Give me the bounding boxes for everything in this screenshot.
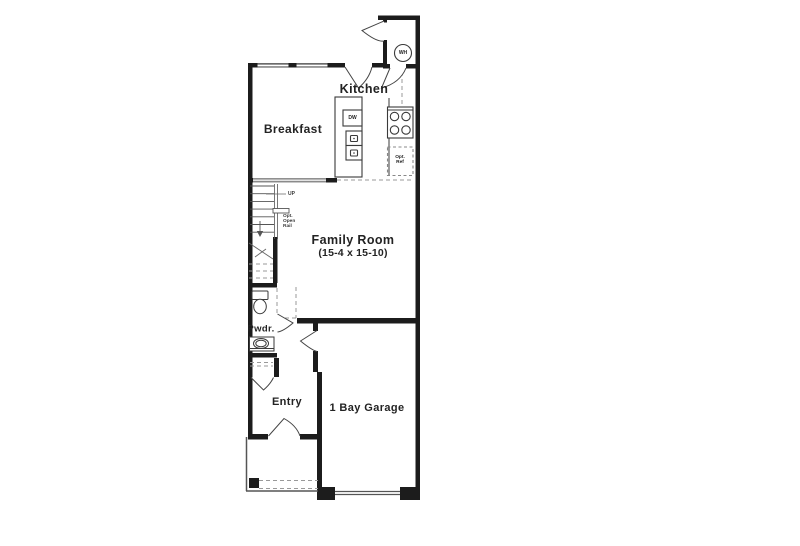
- room-label-powder: Pwdr.: [247, 324, 274, 335]
- wall: [248, 353, 277, 358]
- wall: [248, 283, 277, 288]
- sink-vanity-icon: [250, 337, 275, 351]
- wall: [383, 40, 387, 68]
- door-swing-powder: [278, 314, 294, 332]
- stair-header-band: [253, 178, 326, 182]
- wall: [274, 358, 279, 377]
- opt-open-rail-label: Opt. Open Rail: [283, 214, 295, 229]
- room-label-breakfast: Breakfast: [264, 122, 322, 136]
- wall: [313, 351, 318, 372]
- opt-ref-label: Opt. Ref: [395, 155, 405, 165]
- floor-plan: Breakfast Kitchen Family Room (15-4 x 15…: [0, 0, 800, 546]
- wall: [273, 237, 278, 283]
- wall: [372, 63, 384, 68]
- wall: [383, 64, 390, 69]
- water-heater-label: WH: [399, 50, 407, 56]
- wall: [326, 178, 337, 183]
- wall: [248, 178, 253, 183]
- wall: [317, 372, 322, 493]
- wall: [400, 487, 420, 500]
- opt-ref-line: Ref: [395, 160, 405, 165]
- window-icon: [297, 64, 328, 68]
- wall: [317, 487, 335, 500]
- range-icon: [388, 107, 414, 138]
- sink-icon: [346, 131, 362, 160]
- floor-plan-geometry: [0, 0, 800, 546]
- room-label-garage: 1 Bay Garage: [329, 402, 404, 414]
- door-swing-water-heater: [362, 21, 384, 41]
- door-swing-front-entry: [269, 419, 301, 437]
- stairs-up-label: UP: [288, 191, 295, 197]
- dishwasher-label: DW: [348, 115, 356, 121]
- room-label-family-room: Family Room: [312, 233, 395, 247]
- toilet-icon: [252, 291, 268, 314]
- door-swing-garage: [301, 331, 318, 352]
- wall: [416, 16, 421, 500]
- door-swing-closet: [251, 378, 274, 391]
- porch-post: [249, 478, 259, 488]
- wall: [248, 434, 268, 440]
- understair-diagonal: [249, 243, 273, 259]
- rail-return: [273, 209, 289, 214]
- powder-fixtures: [250, 291, 275, 351]
- room-label-entry: Entry: [272, 396, 302, 408]
- porch-and-garage-front: [246, 437, 400, 495]
- wall: [313, 322, 318, 331]
- wall: [248, 63, 253, 437]
- opt-open-rail-line: Rail: [283, 224, 295, 229]
- room-dimensions-family-room: (15-4 x 15-10): [318, 247, 387, 259]
- wall: [300, 434, 318, 440]
- window-icon: [258, 64, 289, 68]
- arrow-head-icon: [257, 231, 263, 237]
- room-label-kitchen: Kitchen: [340, 82, 389, 96]
